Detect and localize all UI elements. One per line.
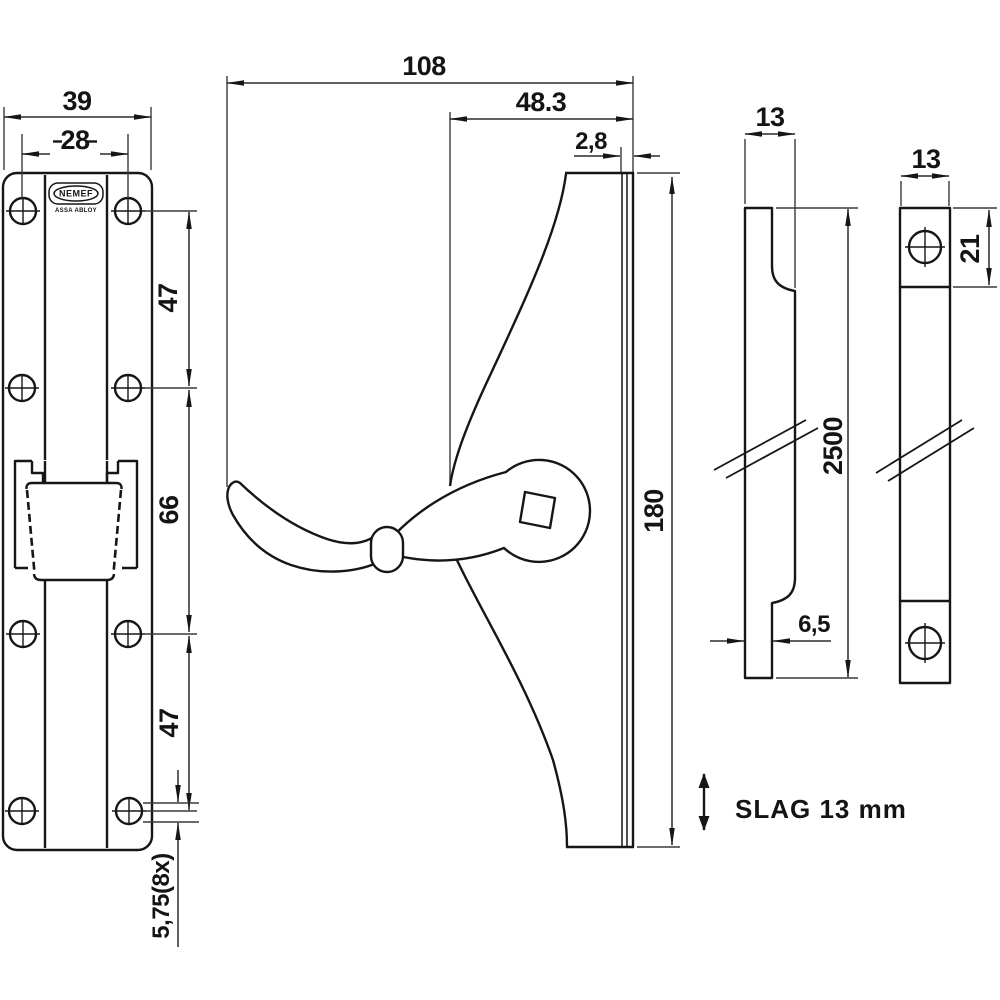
dim-profile-width-label: 13: [755, 102, 785, 132]
stroke-note-label: SLAG 13 mm: [735, 794, 907, 824]
dim-side-handle-offset: 48.3: [450, 87, 633, 119]
dim-front-hole-spacing-label: 28: [60, 125, 90, 155]
stroke-note: SLAG 13 mm: [704, 774, 907, 830]
brand-logo-text: NEMEF: [59, 189, 93, 199]
body-upper-curve: [450, 174, 566, 486]
dim-face-end-height: 21: [953, 208, 997, 287]
dim-face-width-label: 13: [911, 144, 941, 174]
dim-face-width: 13: [901, 144, 949, 206]
dim-side-height: 180: [639, 177, 672, 845]
dim-front-seg-mid-label: 66: [154, 495, 184, 525]
dim-profile-step-label: 6,5: [798, 611, 830, 638]
technical-drawing-page: NEMEF ASSA ABLOY: [0, 0, 1000, 1000]
body-lower-curve: [456, 558, 567, 847]
latch-bolt: [26, 483, 121, 580]
rod-profile-view: 13 2500 6,5: [710, 102, 858, 678]
rod-face-view: 13 21: [876, 144, 997, 683]
dim-side-handle-offset-label: 48.3: [516, 87, 567, 117]
dim-front-total-width-label: 39: [62, 86, 92, 116]
handle-boss: [371, 527, 403, 572]
side-view: 108 48.3 2,8 180: [227, 51, 680, 847]
dim-face-end-height-label: 21: [955, 234, 985, 264]
dim-front-seg-bot-label: 47: [154, 708, 184, 737]
front-plate-view: NEMEF ASSA ABLOY: [3, 86, 199, 947]
handle-hub: [382, 460, 590, 562]
espagnolette-technical-drawing: NEMEF ASSA ABLOY: [0, 0, 1000, 1000]
brand-sub-text: ASSA ABLOY: [55, 208, 97, 214]
dim-side-depth: 108: [227, 51, 633, 83]
dim-side-plate-thickness-label: 2,8: [575, 128, 607, 155]
dim-front-hole-note-label: 5,75(8x): [148, 853, 175, 938]
spindle-square-hole: [520, 492, 555, 528]
latch-bolt-fill: [26, 483, 121, 580]
dim-side-plate-thickness: 2,8: [574, 128, 660, 156]
handle-grip: [227, 482, 377, 572]
dim-side-depth-label: 108: [402, 51, 446, 81]
rod-profile-outline: [745, 208, 795, 678]
dim-profile-length-label: 2500: [818, 417, 848, 475]
rod-face-outline: [900, 208, 950, 683]
dim-side-height-label: 180: [639, 489, 669, 533]
dim-front-seg-top-label: 47: [153, 283, 183, 312]
